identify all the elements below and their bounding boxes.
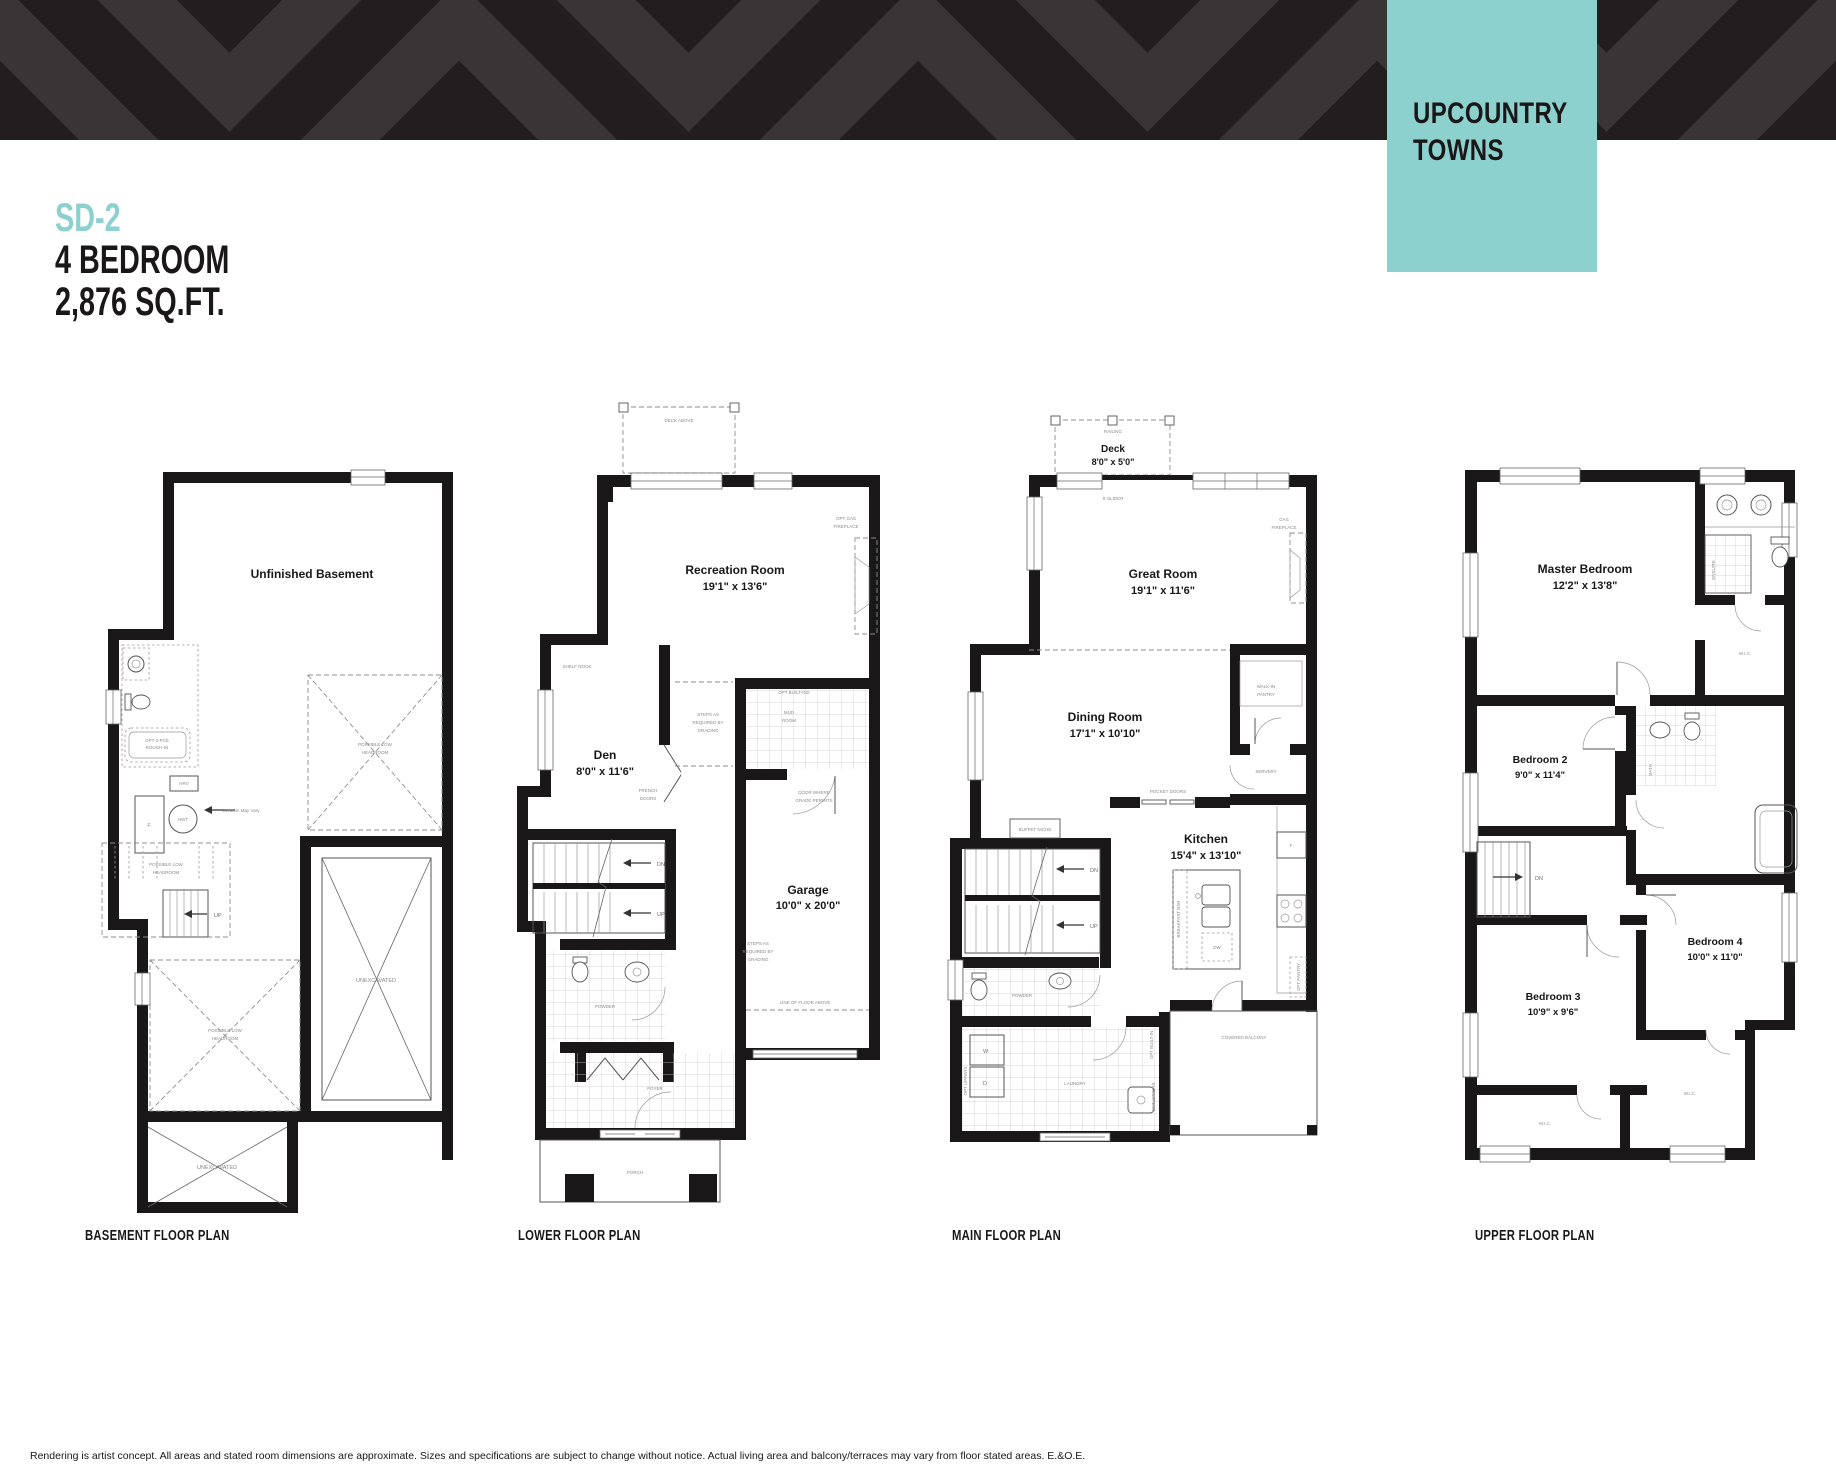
chevron-stripe-block (689, 0, 919, 140)
opt-roughin-label: OPT 3-PCE (145, 738, 169, 743)
garage-dims: 10'0" x 20'0" (776, 900, 841, 912)
wic-label: W.I.C. (1739, 651, 1751, 656)
upper-master-bedroom: Master Bedroom 12'2" x 13'8" (1538, 562, 1650, 695)
porch-label: PORCH (627, 1170, 643, 1175)
laundry-label: LAUNDRY (1064, 1081, 1085, 1086)
floorplan-sheet: UPCOUNTRY TOWNS SD-2 4 BEDROOM 2,876 SQ.… (0, 0, 1836, 1467)
deck-label: Deck (1101, 444, 1125, 455)
kitchen-dims: 15'4" x 13'10" (1171, 850, 1242, 862)
great-room-dims: 19'1" x 11'6" (1131, 585, 1195, 597)
chevron-stripe-block (1148, 0, 1378, 140)
bedroom2-label: Bedroom 2 (1513, 754, 1568, 766)
main-pantry-servery: WALK-IN PANTRY SERVERY (1230, 661, 1302, 789)
dn-label: DN (657, 862, 665, 868)
powder-label: POWDER (1012, 993, 1033, 998)
lower-garage: DOOR WHERE GRADE PERMITS Garage 10'0" x … (742, 790, 869, 1010)
chevron-stripe-block (230, 0, 460, 140)
chevron-stripe-block (0, 0, 230, 140)
line-of-floor-above-label: LINE OF FLOOR ABOVE (780, 1000, 831, 1005)
possible-low-headroom-label: POSSIBLE LOW (149, 862, 184, 867)
basement-plan-title: BASEMENT FLOOR PLAN (85, 1228, 230, 1244)
main-floor-plan: RAILING Deck 8'0" x 5'0" (950, 345, 1320, 1155)
lower-mud-room: OPT BUILT-INS MUD ROOM (746, 689, 869, 814)
gas-fireplace-label: GAS (1279, 517, 1289, 522)
possible-low-headroom-label: POSSIBLE LOW (208, 1028, 243, 1033)
recreation-room-dims: 19'1" x 13'6" (703, 581, 768, 593)
great-room-label: Great Room (1129, 567, 1198, 581)
upper-floor-plan: Master Bedroom 12'2" x 13'8" ENSUITE W.I… (1465, 455, 1805, 1160)
washer-label: W (983, 1049, 989, 1055)
dryer-label: D (983, 1081, 987, 1087)
ensuite-label: ENSUITE (1711, 560, 1716, 580)
door-grade-label: GRADE PERMITS (795, 798, 832, 803)
up-label: UP (1090, 924, 1098, 930)
plan-area: 2,876 SQ.FT. (55, 281, 229, 323)
recreation-room-label: Recreation Room (685, 563, 784, 577)
upper-plan-title: UPPER FLOOR PLAN (1475, 1228, 1594, 1244)
wic-label: W.I.C. (1539, 1121, 1551, 1126)
powder-label: POWDER (595, 1004, 616, 1009)
breakfast-bar-label: BREAKFAST BAR (1176, 900, 1181, 938)
brand-name-line1: UPCOUNTRY (1413, 95, 1560, 132)
walkin-pantry-label: PANTRY (1257, 692, 1275, 697)
bath-label: BATH (1648, 764, 1653, 776)
shelf-nook-label: SHELF NOOK (562, 664, 591, 669)
mud-room-label: ROOM (782, 718, 796, 723)
lower-plan-title: LOWER FLOOR PLAN (518, 1228, 640, 1244)
opt-uppers-label: OPT UPPERS (963, 1067, 968, 1096)
railing-label: RAILING (1104, 429, 1123, 434)
bedroom4-label: Bedroom 4 (1688, 936, 1743, 948)
dn-label: DN (1090, 868, 1098, 874)
lower-powder: POWDER (546, 950, 665, 1042)
garage-label: Garage (787, 883, 829, 897)
opt-builtin-label: OPT BUILT-IN (1149, 1031, 1154, 1060)
dining-room-dims: 17'1" x 10'10" (1070, 728, 1141, 740)
basement-mechanical: HRV F HWT Location May Vary (135, 776, 260, 853)
opt-gas-fireplace-label: OPT GAS (836, 516, 856, 521)
kitchen-label: Kitchen (1184, 832, 1228, 846)
lower-deck-above: DECK ABOVE (619, 403, 739, 473)
master-bedroom-dims: 12'2" x 13'8" (1553, 580, 1618, 592)
basement-walls (108, 472, 453, 1213)
foyer-label: FOYER (647, 1086, 663, 1091)
opt-roughin-label: ROUGH-IN (146, 745, 169, 750)
servery-label: SERVERY (1255, 769, 1276, 774)
bedroom3-dims: 10'9" x 9'6" (1528, 1007, 1579, 1018)
plan-bedrooms: 4 BEDROOM (55, 239, 229, 281)
bedroom4-dims: 10'0" x 11'0" (1687, 952, 1742, 963)
upper-stairs: DN (1477, 842, 1543, 917)
possible-low-headroom-label: POSSIBLE LOW (358, 742, 393, 747)
walkin-pantry-label: WALK-IN (1257, 684, 1276, 689)
opt-gas-fireplace-label: FIREPLACE (833, 524, 858, 529)
opt-pantry-label: OPT PANTRY (1296, 963, 1301, 991)
bedroom2-dims: 9'0" x 11'4" (1515, 770, 1565, 781)
pocket-doors-label: POCKET DOORS (1150, 789, 1186, 794)
possible-low-headroom-label: HEADROOM (212, 1036, 239, 1041)
plan-code: SD-2 (55, 197, 229, 239)
buffet-niche-label: BUFFET NICHE (1019, 827, 1052, 832)
upper-bedroom2: Bedroom 2 9'0" x 11'4" (1513, 717, 1615, 781)
upper-bath: BATH (1636, 706, 1797, 873)
possible-low-headroom-label: HEADROOM (362, 750, 389, 755)
covered-balcony-label: COVERED BALCONY (1221, 1035, 1266, 1040)
location-may-vary-label: Location May Vary (223, 808, 261, 813)
steps-grading-label: REQUIRED BY (692, 720, 723, 725)
unexcavated-label: UNEXCAVATED (197, 1165, 237, 1171)
upper-bedroom3: Bedroom 3 10'9" x 9'6" W.I.C. (1526, 925, 1619, 1126)
steps-grading-label: STEPS AS (697, 712, 719, 717)
bedroom3-label: Bedroom 3 (1526, 991, 1581, 1003)
main-dining: Dining Room 17'1" x 10'10" POCKET DOORS (1068, 710, 1194, 804)
basement-unexcavated-small-box: UNEXCAVATED (148, 1127, 287, 1207)
wic-label: W.I.C. (1684, 1091, 1696, 1096)
den-label: Den (594, 748, 617, 762)
unexcavated-label: UNEXCAVATED (356, 978, 396, 984)
den-dims: 8'0" x 11'6" (576, 766, 634, 778)
upper-master-wic: W.I.C. (1735, 605, 1761, 656)
disclaimer-text: Rendering is artist concept. All areas a… (30, 1450, 1085, 1462)
main-powder: POWDER (962, 968, 1100, 1016)
main-deck: RAILING Deck 8'0" x 5'0" (1051, 416, 1174, 475)
furnace-label: F (147, 823, 151, 829)
hwt-label: HWT (178, 817, 188, 822)
main-great-room: Great Room 19'1" x 11'6" GAS FIREPLACE (1029, 517, 1306, 650)
basement-bathroom-roughin: OPT 3-PCE ROUGH-IN (122, 645, 198, 767)
steps-grading-label: STEPS AS (747, 941, 769, 946)
lower-rec-room: Recreation Room 19'1" x 13'6" OPT GAS FI… (562, 516, 877, 669)
door-grade-label: DOOR WHERE (798, 790, 830, 795)
mud-room-label: MUD (784, 710, 795, 715)
brand-box: UPCOUNTRY TOWNS (1387, 0, 1597, 272)
main-kitchen: Kitchen 15'4" x 13'10" BREAKFAST BAR DW … (1171, 806, 1306, 1011)
chevron-stripe-block (459, 0, 689, 140)
upper-ensuite: ENSUITE (1705, 495, 1795, 593)
dishwasher-label: DW (1213, 945, 1221, 950)
basement-floor-plan: UNEXCAVATED UNEXCAVATED POSSIBLE LOW HEA… (75, 470, 460, 1210)
steps-grading-label: GRADING (747, 957, 769, 962)
main-laundry: W D OPT UPPERS LAUNDRY OPT BUILT-IN OPT … (962, 1027, 1159, 1131)
lower-floor-plan: DECK ABOVE (505, 342, 885, 1222)
chevron-stripe-block (918, 0, 1148, 140)
basement-low-headroom-bottom: POSSIBLE LOW HEADROOM (150, 960, 300, 1111)
chevron-stripe-block (1607, 0, 1836, 140)
up-label: UP (214, 913, 222, 919)
french-doors-label: FRENCH (639, 788, 658, 793)
upper-bedroom4: Bedroom 4 10'0" x 11'0" W.I.C. (1646, 895, 1743, 1096)
gas-fireplace-label: FIREPLACE (1271, 525, 1296, 530)
dn-label: DN (1535, 876, 1543, 882)
hrv-label: HRV (179, 781, 188, 786)
lower-stairs: DN UP (533, 839, 665, 937)
main-covered-balcony: COVERED BALCONY (1170, 1011, 1317, 1135)
up-label: UP (657, 912, 665, 918)
opt-builtins-label: OPT BUILT-INS (778, 690, 810, 695)
opt-uppers-label: OPT UPPERS (1151, 1083, 1156, 1112)
fridge-label: F (1290, 843, 1293, 848)
deck-above-label: DECK ABOVE (664, 418, 693, 423)
plan-id-block: SD-2 4 BEDROOM 2,876 SQ.FT. (55, 197, 297, 323)
lower-porch: PORCH (540, 1140, 720, 1202)
basement-low-headroom-upper-right: POSSIBLE LOW HEADROOM (308, 675, 442, 830)
lower-den: Den 8'0" x 11'6" FRENCH DOORS (576, 745, 681, 802)
slider-label: 6' SLIDER (1103, 496, 1125, 501)
lower-steps-hall: STEPS AS REQUIRED BY GRADING (675, 682, 733, 766)
main-plan-title: MAIN FLOOR PLAN (952, 1228, 1061, 1244)
lower-foyer: FOYER (546, 1053, 735, 1128)
steps-grading-label: REQUIRED BY (742, 949, 773, 954)
master-bedroom-label: Master Bedroom (1538, 562, 1633, 576)
possible-low-headroom-label: HEADROOM (153, 870, 180, 875)
steps-grading-label: GRADING (697, 728, 719, 733)
brand-name-line2: TOWNS (1413, 132, 1560, 169)
dining-room-label: Dining Room (1068, 710, 1143, 724)
deck-dims: 8'0" x 5'0" (1092, 457, 1135, 467)
unfinished-basement-label: Unfinished Basement (251, 567, 374, 581)
french-doors-label: DOORS (640, 796, 657, 801)
basement-unexcavated-column: UNEXCAVATED (322, 858, 431, 1100)
